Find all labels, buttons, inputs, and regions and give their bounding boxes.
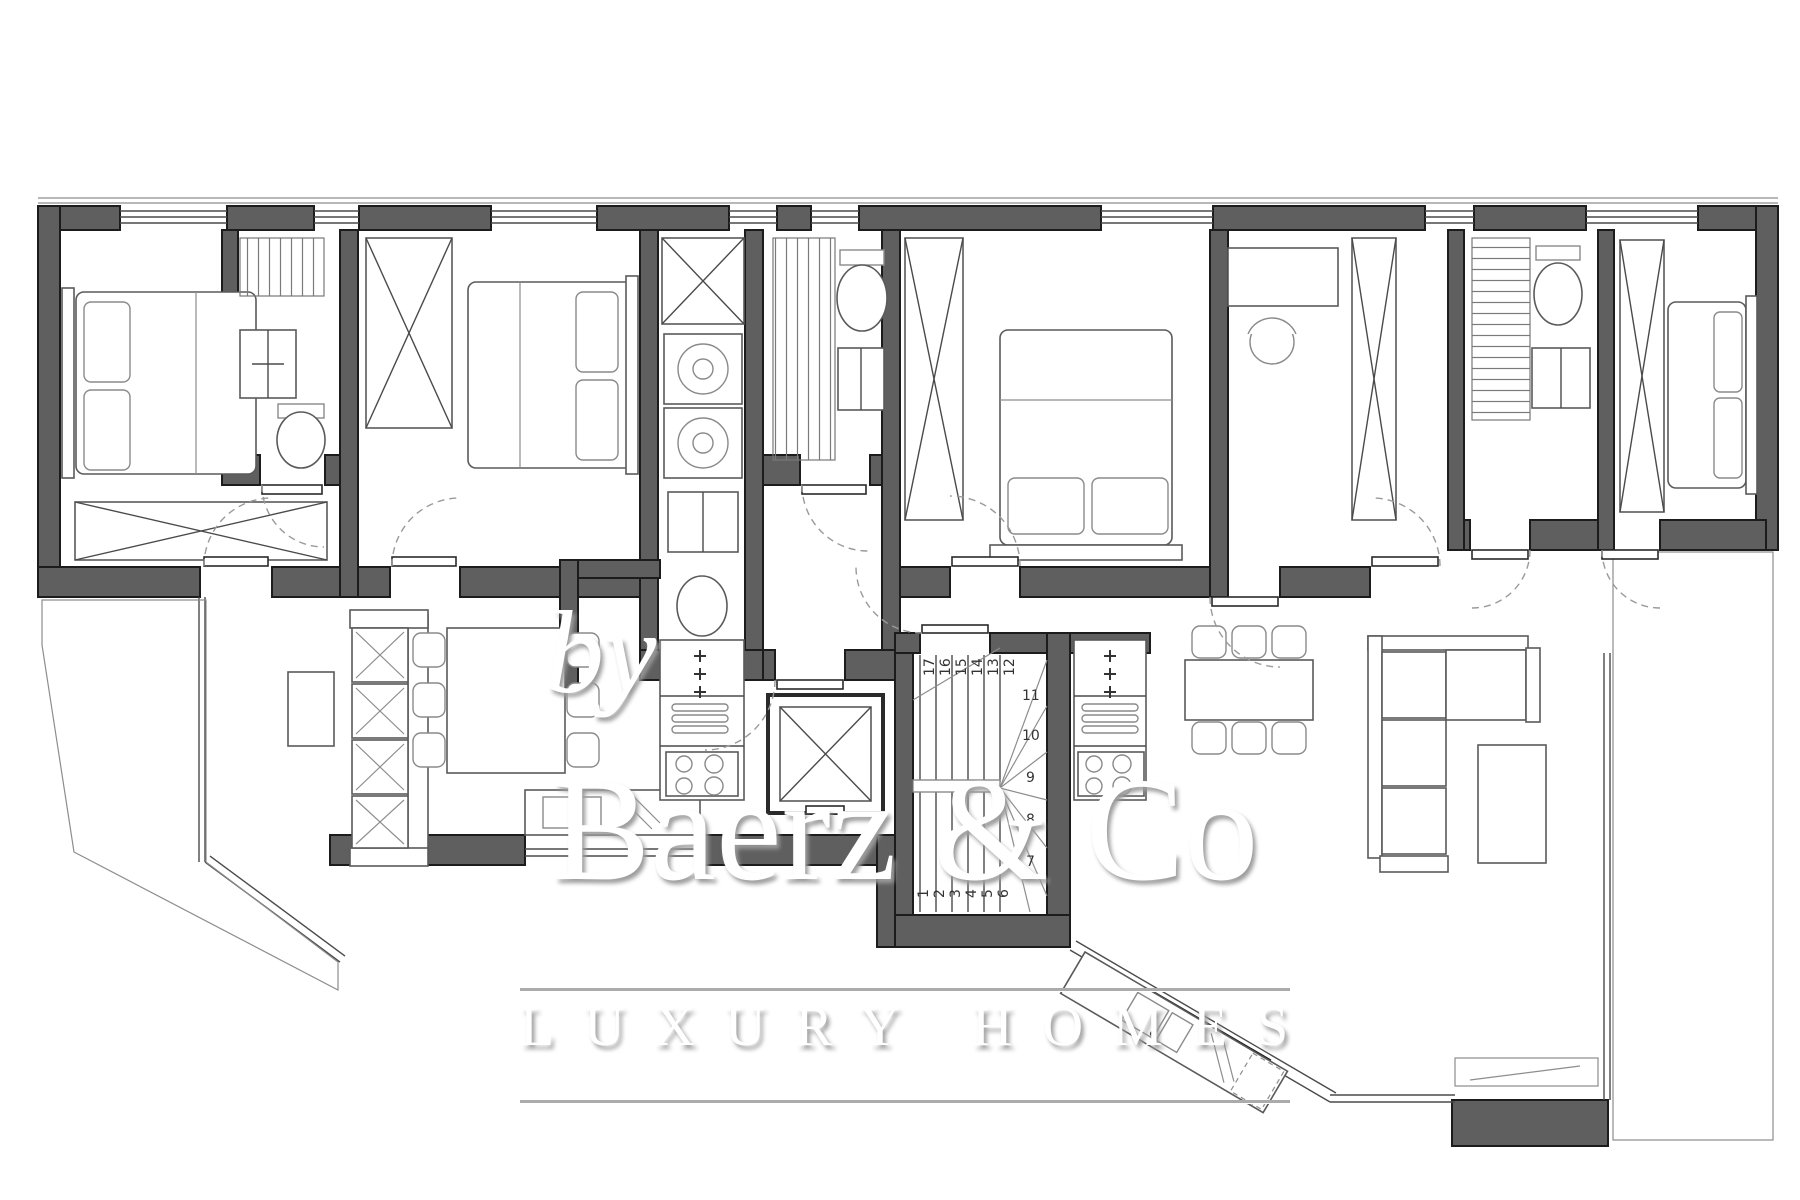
shower [773,238,835,460]
toilet [1534,246,1582,325]
shower [240,238,324,296]
pillow [1092,478,1168,534]
floor-plan-page: 7 8 9 10 11 1 2 3 4 5 6 12 13 14 15 16 1… [0,0,1800,1200]
washing-machine [664,334,742,404]
utility-room [662,238,744,636]
toilet [277,404,325,468]
sink [838,348,884,410]
sink [668,492,738,552]
shower [1472,238,1530,420]
pillow [1714,398,1742,478]
chair [1232,626,1266,658]
door [802,485,868,551]
chair [413,633,445,667]
balcony [42,600,338,990]
wardrobe [366,238,452,428]
watermark-rule-top [520,988,1290,991]
stair-number: 17 [922,658,938,676]
bed-headboard [1746,296,1757,494]
desk [1228,248,1338,306]
window [199,597,345,962]
coffee-table [1478,745,1546,863]
coffee-table [288,672,334,746]
bedroom-e [1620,240,1757,512]
wardrobe [75,502,327,560]
pillow [1008,478,1084,534]
chair [1192,626,1226,658]
stair-number: 11 [1022,688,1040,704]
pillow [84,302,130,382]
stair-number: 14 [970,658,986,676]
door [392,498,460,566]
stair-number: 13 [986,658,1002,676]
toilet [677,576,727,636]
bed-headboard [626,276,638,474]
closet [662,238,744,324]
bed-headboard [62,288,74,478]
stair-number: 12 [1002,658,1018,676]
bathroom-2 [773,238,887,460]
washing-machine [664,408,742,478]
stair-number: 10 [1022,728,1040,744]
toilet [837,250,887,331]
door [1472,550,1530,608]
watermark-brand: Baerz & Co [515,745,1295,915]
facade-sill-lines [38,198,1778,203]
bedroom-b [366,238,638,474]
bathroom-3 [1472,238,1590,420]
stair-number: 16 [938,658,954,676]
pillow [576,380,618,460]
sink [1532,348,1590,408]
bedroom-c [905,238,1182,560]
watermark-rule-bottom [520,1100,1290,1103]
door [1602,550,1660,608]
stair-number: 15 [954,658,970,676]
wardrobe [1620,240,1664,512]
bedroom-d [1228,238,1396,520]
desk-chair [1248,318,1296,364]
dining-table [1185,660,1313,720]
chair [413,733,445,767]
pillow [84,390,130,470]
dining-set [1185,626,1313,754]
pillow [1714,312,1742,392]
watermark-by: by [545,585,656,721]
sink [240,330,296,398]
wardrobe [905,238,963,520]
pillow [576,292,618,372]
watermark-tagline: LUXURY HOMES [520,995,1290,1059]
chair [413,683,445,717]
wardrobe [1352,238,1396,520]
chair [1272,626,1306,658]
